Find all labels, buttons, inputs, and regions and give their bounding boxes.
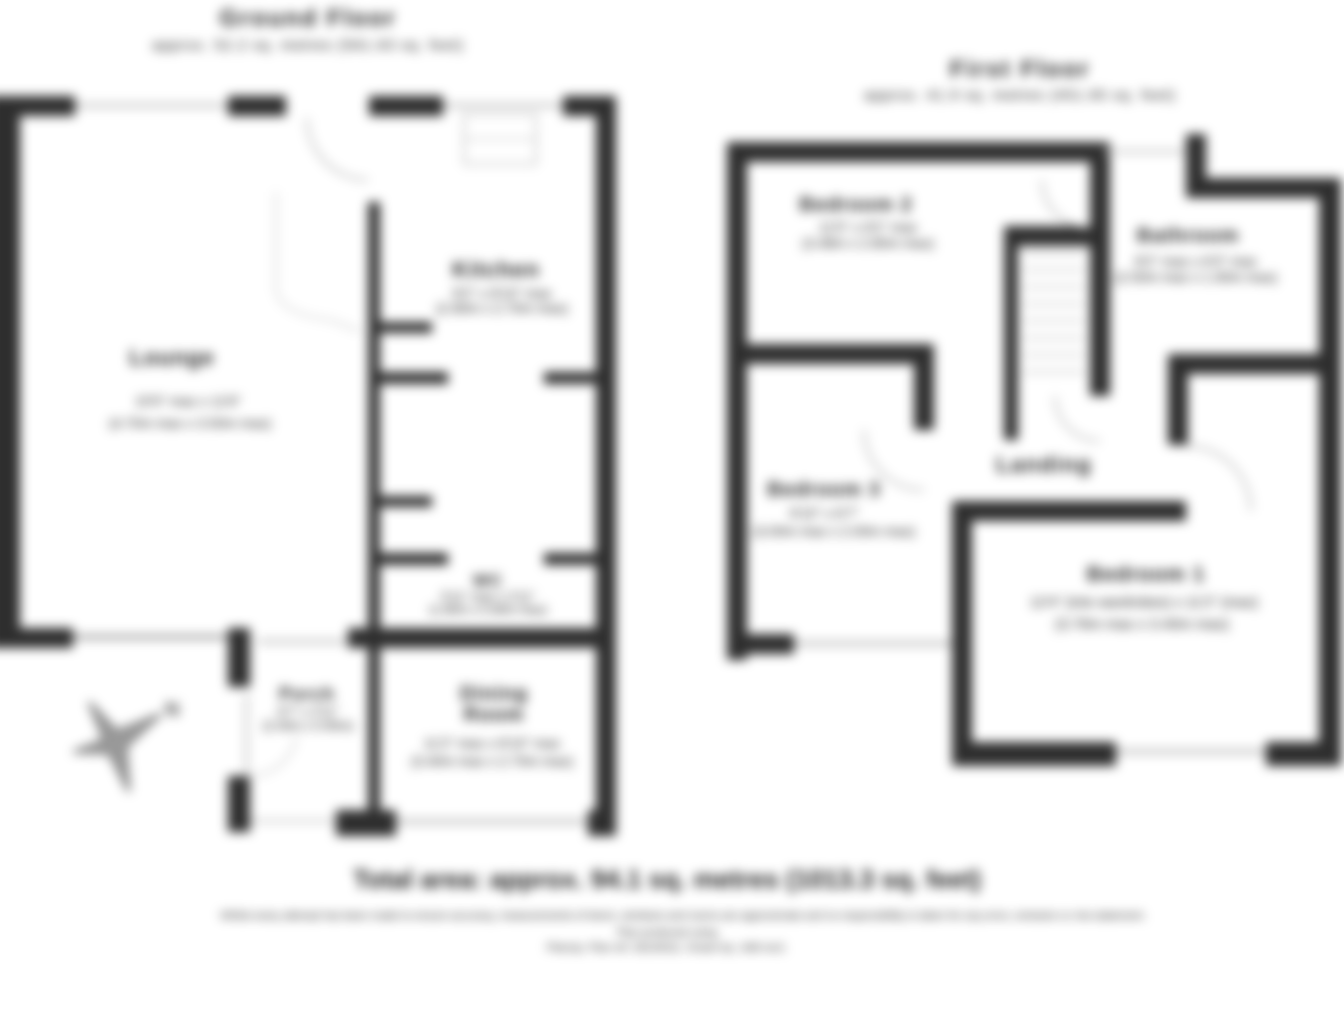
svg-text:Bedroom 1: Bedroom 1 bbox=[1087, 563, 1206, 586]
svg-text:(2.80m x 2.70m max): (2.80m x 2.70m max) bbox=[436, 300, 568, 316]
svg-text:Bathroom: Bathroom bbox=[1137, 225, 1239, 247]
svg-text:First Floor: First Floor bbox=[950, 56, 1091, 83]
svg-text:Landing: Landing bbox=[996, 452, 1092, 477]
svg-text:15'5" max x 11'6": 15'5" max x 11'6" bbox=[135, 393, 241, 409]
svg-text:Bedroom 3: Bedroom 3 bbox=[767, 479, 880, 501]
svg-text:9'2" x 8'10" max: 9'2" x 8'10" max bbox=[452, 285, 551, 301]
svg-text:Whilst every attempt has been: Whilst every attempt has been made to en… bbox=[220, 910, 1145, 922]
svg-text:(3.00m max x 2.00m max): (3.00m max x 2.00m max) bbox=[753, 523, 916, 539]
svg-text:Bedroom 2: Bedroom 2 bbox=[799, 194, 912, 216]
svg-text:Dining: Dining bbox=[460, 683, 528, 705]
svg-text:6'7" x 2'11": 6'7" x 2'11" bbox=[278, 705, 339, 719]
svg-text:5'11" max x 2'11": 5'11" max x 2'11" bbox=[441, 590, 535, 604]
svg-text:PlanUp. Plan ref: 28109311. Dr: PlanUp. Plan ref: 28109311. Drawn by: JA… bbox=[547, 942, 788, 954]
svg-text:Lounge: Lounge bbox=[129, 345, 214, 370]
svg-text:approx. 52.2 sq. metres (561.6: approx. 52.2 sq. metres (561.63 sq. feet… bbox=[152, 37, 464, 54]
svg-text:Plan produced using: Plan produced using bbox=[617, 927, 717, 939]
svg-text:(3.76m max x 3.40m max): (3.76m max x 3.40m max) bbox=[1055, 616, 1229, 633]
svg-text:Porch: Porch bbox=[279, 684, 335, 704]
svg-text:Kitchen: Kitchen bbox=[452, 257, 540, 282]
svg-text:9'10" x 6'7": 9'10" x 6'7" bbox=[790, 505, 859, 521]
svg-text:(3.40m max x 2.70m max): (3.40m max x 2.70m max) bbox=[411, 753, 574, 769]
svg-text:N: N bbox=[165, 699, 179, 721]
svg-text:11'2" max x 8'10" max: 11'2" max x 8'10" max bbox=[424, 735, 560, 751]
svg-text:(3.48m x 2.80m max): (3.48m x 2.80m max) bbox=[802, 235, 934, 251]
svg-text:8'2" max x 6'3" max: 8'2" max x 6'3" max bbox=[1135, 253, 1257, 269]
svg-text:approx. 41.9 sq. metres (451.6: approx. 41.9 sq. metres (451.65 sq. feet… bbox=[864, 87, 1176, 104]
svg-text:Total area: approx. 94.1 sq. m: Total area: approx. 94.1 sq. metres (101… bbox=[353, 864, 981, 894]
svg-text:12'4" (into wardrobes) x 11'2": 12'4" (into wardrobes) x 11'2" (max) bbox=[1030, 595, 1258, 611]
svg-text:WC: WC bbox=[473, 571, 503, 590]
svg-text:(1.80m x 0.90m max): (1.80m x 0.90m max) bbox=[429, 603, 547, 617]
svg-text:(2.00m x 0.90m): (2.00m x 0.90m) bbox=[262, 719, 353, 733]
svg-text:Room: Room bbox=[464, 704, 525, 726]
svg-text:(4.70m max x 3.50m max): (4.70m max x 3.50m max) bbox=[109, 415, 272, 431]
svg-text:11'5" x 9'2" max: 11'5" x 9'2" max bbox=[819, 219, 917, 235]
svg-text:(2.50m max x 1.90m max): (2.50m max x 1.90m max) bbox=[1115, 269, 1278, 285]
svg-text:Ground Floor: Ground Floor bbox=[219, 5, 396, 32]
